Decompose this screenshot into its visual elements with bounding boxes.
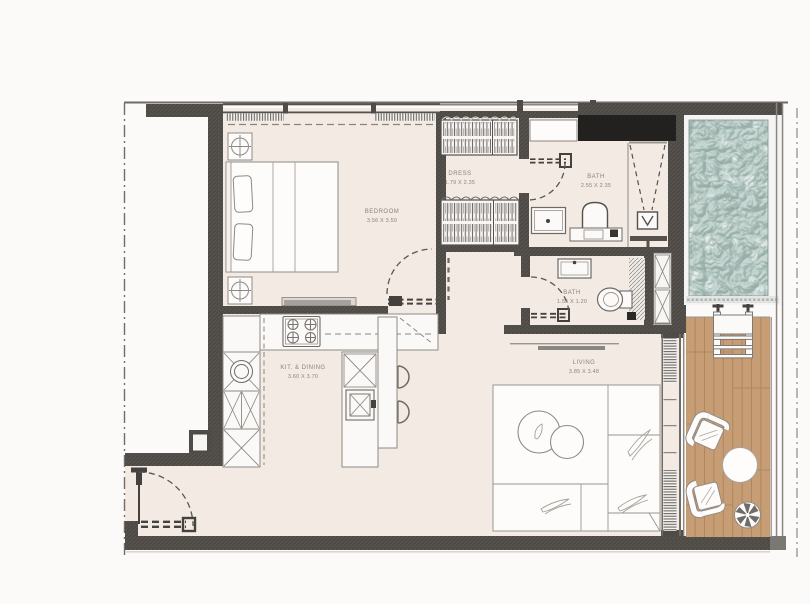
svg-text:POOL: POOL xyxy=(718,197,737,203)
svg-text:1.79 X 2.35: 1.79 X 2.35 xyxy=(445,180,475,186)
svg-text:BATH: BATH xyxy=(587,174,605,180)
svg-text:2.0 X 4.7: 2.0 X 4.7 xyxy=(715,206,739,212)
svg-text:3.60 X 3.70: 3.60 X 3.70 xyxy=(288,374,318,380)
svg-text:1.55 X 1.20: 1.55 X 1.20 xyxy=(557,299,587,305)
svg-text:BATH: BATH xyxy=(563,290,581,296)
svg-text:LIVING: LIVING xyxy=(573,360,596,366)
svg-text:3.85 X 3.48: 3.85 X 3.48 xyxy=(569,369,599,375)
svg-text:BEDROOM: BEDROOM xyxy=(365,209,400,215)
svg-text:DRESS: DRESS xyxy=(448,171,471,177)
svg-text:2.55 X 2.35: 2.55 X 2.35 xyxy=(581,183,611,189)
svg-text:3.56 X 3.50: 3.56 X 3.50 xyxy=(367,218,397,224)
svg-text:KIT. & DINING: KIT. & DINING xyxy=(280,365,325,371)
